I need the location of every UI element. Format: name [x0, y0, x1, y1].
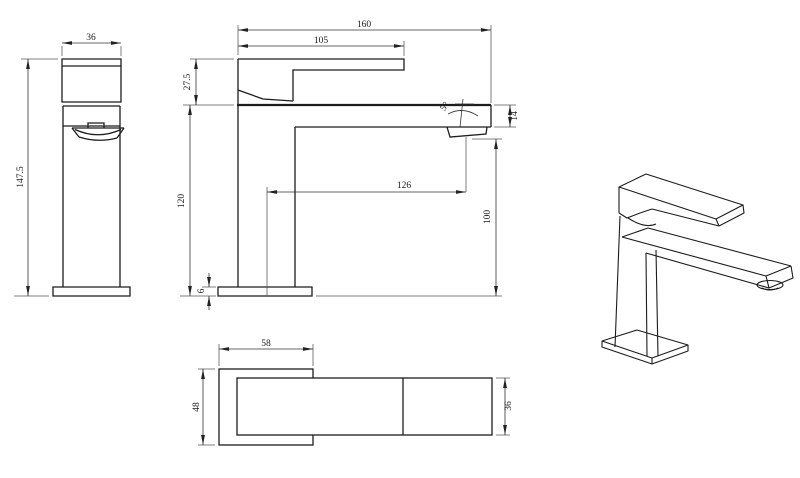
dim-handle-reach-label: 105 [314, 36, 329, 46]
side-handle-outline [62, 59, 121, 102]
dim-base-width-label: 58 [261, 339, 271, 349]
dim-side-height: 147.5 [14, 59, 58, 296]
dim-handle-height: 27.5 [183, 59, 234, 105]
dim-spout-angle: 5° [438, 99, 478, 127]
p3d-spout-arm [622, 228, 793, 288]
dim-base-depth-label: 48 [192, 402, 202, 412]
dim-handle-reach: 105 [238, 36, 404, 56]
side-base-plate [53, 287, 130, 296]
p3d-base [602, 330, 688, 364]
dim-base-depth: 48 [192, 369, 215, 445]
dim-spout-center-reach: 126 [267, 137, 466, 296]
front-outlet [447, 127, 487, 137]
dim-side-width: 36 [62, 33, 121, 56]
dim-spout-thickness-label: 14 [510, 111, 520, 121]
drawing-sheet: 36 147.5 5° 160 [0, 0, 800, 478]
perspective-view [602, 174, 793, 364]
dim-base-width: 58 [219, 339, 313, 366]
top-spout-outline [237, 378, 492, 435]
dim-spout-angle-label: 5° [438, 100, 452, 113]
top-view: 58 48 36 [192, 339, 514, 445]
faucet-drawing-svg: 36 147.5 5° 160 [0, 0, 800, 478]
dim-base-thickness-label: 6 [197, 288, 207, 293]
front-view: 5° 160 105 27.5 120 [177, 20, 520, 310]
front-lever-outline [238, 59, 404, 101]
dim-handle-height-label: 27.5 [183, 73, 193, 90]
dim-overall-reach-label: 160 [357, 20, 372, 30]
dim-base-thickness: 6 [197, 273, 216, 310]
dim-spout-thickness: 14 [494, 105, 520, 127]
dim-top-spout-width-label: 36 [504, 401, 514, 411]
front-base-plate [218, 287, 312, 296]
dim-outlet-height-label: 100 [483, 210, 493, 225]
dim-overall-reach: 160 [238, 20, 491, 103]
dim-side-height-label: 147.5 [16, 166, 26, 188]
dim-body-height: 120 [177, 105, 216, 296]
dim-outlet-height: 100 [316, 139, 502, 296]
dim-top-spout-width: 36 [496, 378, 514, 435]
dim-side-width-label: 36 [86, 33, 96, 43]
side-view: 36 147.5 [14, 33, 130, 296]
front-spout-outline [295, 105, 491, 287]
p3d-handle [619, 174, 744, 226]
dim-spout-center-reach-label: 126 [397, 181, 412, 191]
dim-body-height-label: 120 [177, 194, 187, 209]
